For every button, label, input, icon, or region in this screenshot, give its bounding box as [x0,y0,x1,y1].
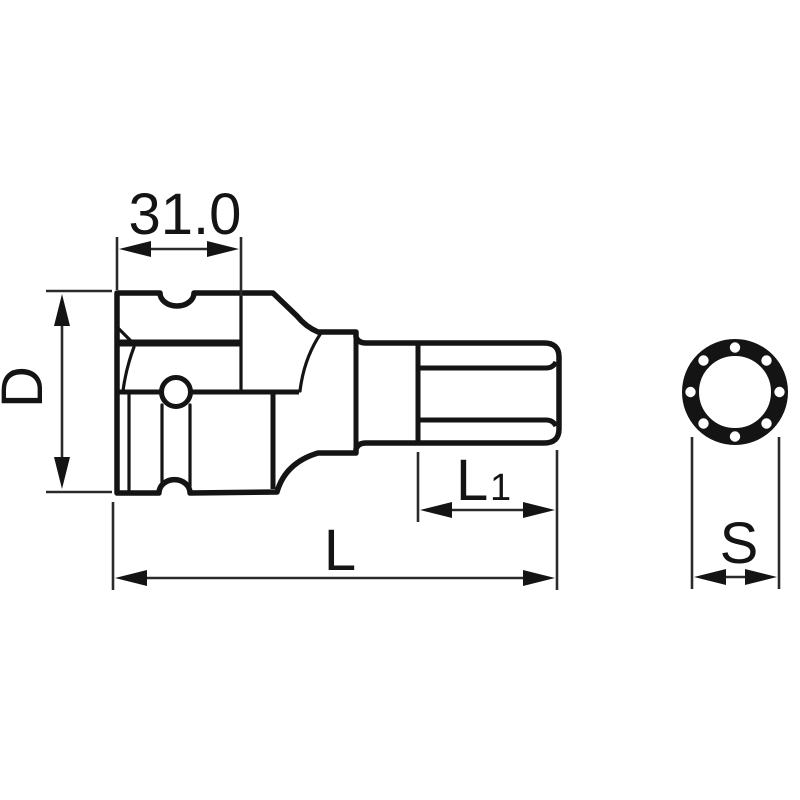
dimension-body-diameter: D [0,291,112,492]
dim-label-l1: L [456,448,488,513]
socket-side-view [117,293,559,493]
technical-drawing-page: 31.0 D L 1 L [0,0,800,800]
end-view-point-notches [685,342,784,441]
dim-label-d: D [0,366,55,408]
dim-label-31-0: 31.0 [129,182,242,247]
dim-label-l: L [324,518,356,583]
arrowhead-left [420,502,452,518]
arrowhead-down [54,457,70,489]
cross-pin-hole-circle [162,378,191,407]
dim-label-s: S [720,511,759,576]
socket-dimension-diagram: 31.0 D L 1 L [0,0,800,800]
dimension-overall-length: L [113,502,555,590]
socket-end-view [685,342,784,441]
arrowhead-right [523,570,555,586]
arrowhead-up [54,294,70,326]
dim-label-l1-subscript: 1 [490,467,511,509]
arrowhead-left [115,570,147,586]
dimension-end-size: S [692,437,779,589]
arrowhead-right [523,502,555,518]
dimension-drive-width: 31.0 [117,182,241,296]
dimension-bit-length: L 1 [418,448,557,590]
